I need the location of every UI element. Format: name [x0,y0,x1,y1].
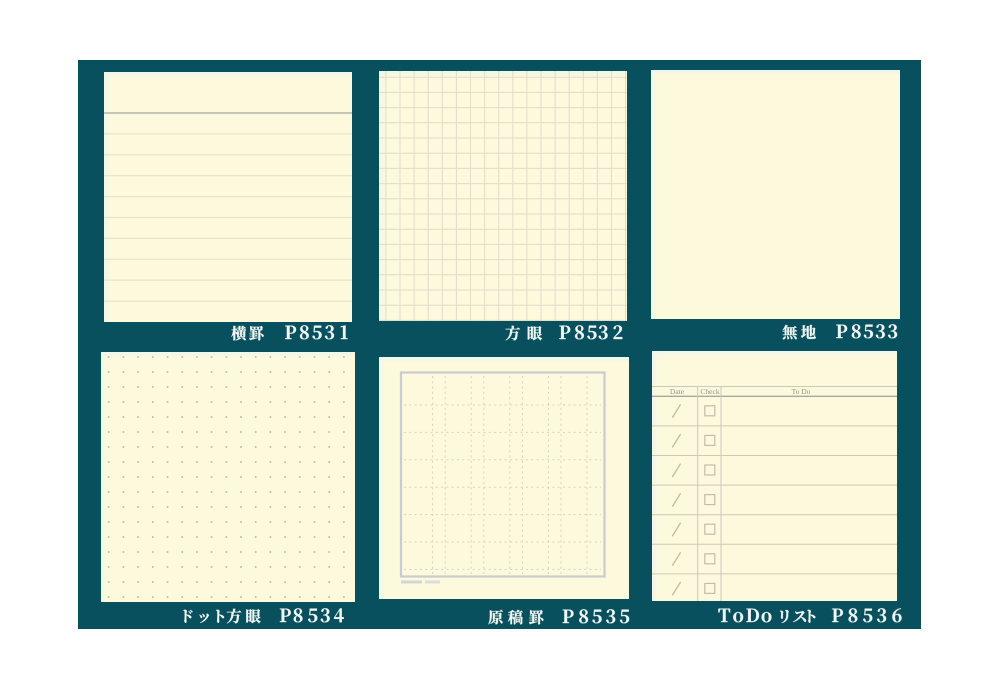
svg-text:To Do: To Do [792,387,811,396]
svg-text:Check: Check [700,387,719,396]
svg-text:Date: Date [670,387,685,396]
